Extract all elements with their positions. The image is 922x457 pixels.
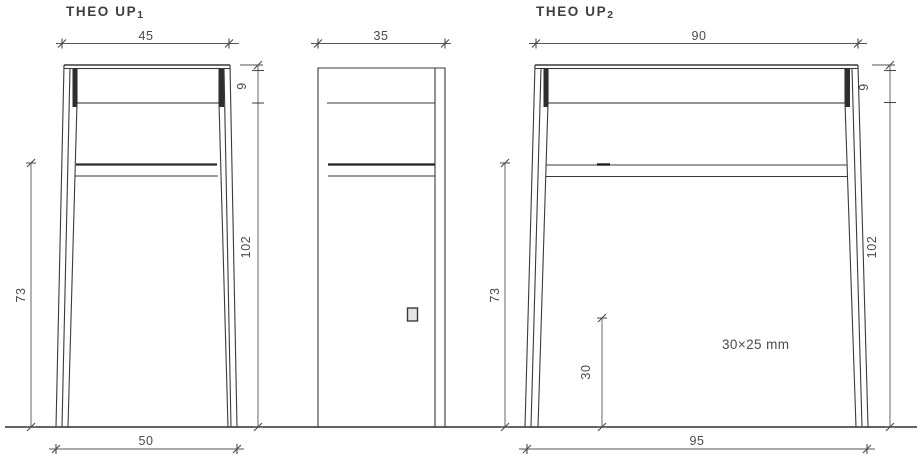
theo-up2-dim-top-width: 90 (529, 29, 867, 49)
theo-up1-dim-label-height-total: 102 (239, 236, 253, 259)
theo-up1-title-subscript: 1 (137, 9, 143, 21)
theo-up2-dim-label-top-thickness: 9 (857, 83, 871, 91)
theo-up2-apron (548, 69, 845, 104)
theo-up1-view: THEO UP1 (14, 4, 264, 454)
theo-up1-apron (77, 69, 219, 104)
theo-up2-dim-label-height-under-shelf: 73 (488, 287, 502, 302)
furniture-dimension-drawing: THEO UP1 (0, 0, 922, 457)
theo-up2-dim-shelf-support-height: 30 (579, 314, 607, 431)
side-view: 35 (311, 29, 451, 427)
theo-up1-dim-label-base-width: 50 (138, 434, 153, 448)
theo-up2-dim-label-height-total: 102 (865, 236, 879, 259)
theo-up1-left-leg-shading (73, 69, 78, 108)
theo-up1-title: THEO UP1 (66, 4, 143, 21)
side-view-outline (318, 68, 445, 427)
theo-up1-right-leg-shading (219, 69, 224, 108)
theo-up2-title-subscript: 2 (607, 9, 613, 21)
theo-up1-dim-left-vertical: 73 (14, 159, 36, 431)
theo-up2-dim-label-base-width: 95 (689, 434, 704, 448)
theo-up1-dim-label-top-thickness: 9 (235, 82, 249, 90)
theo-up2-view: THEO UP2 (488, 4, 896, 454)
theo-up2-title: THEO UP2 (536, 4, 613, 21)
theo-up1-dim-label-height-under-shelf: 73 (14, 287, 28, 302)
theo-up1-legs (56, 65, 237, 427)
theo-up1-dim-label-top-width: 45 (138, 29, 153, 43)
theo-up1-dim-right-vertical: 9 102 (235, 61, 264, 431)
technical-drawing-sheet: THEO UP1 (0, 0, 922, 457)
side-view-dim-depth: 35 (311, 29, 451, 49)
theo-up2-dim-label-shelf-support-height: 30 (579, 364, 593, 379)
side-view-dim-label-depth: 35 (373, 29, 388, 43)
theo-up1-dim-top-width: 45 (56, 29, 239, 49)
theo-up2-left-leg-shading (544, 69, 549, 108)
theo-up2-dim-base-width: 95 (519, 434, 875, 454)
theo-up1-title-text: THEO UP (66, 4, 137, 19)
theo-up2-legs (525, 65, 868, 427)
theo-up1-dim-base-width: 50 (49, 434, 244, 454)
theo-up2-stretcher (546, 165, 848, 177)
theo-up2-title-text: THEO UP (536, 4, 607, 19)
theo-up1-stretcher (76, 165, 219, 177)
theo-up2-profile-note: 30×25 mm (722, 337, 789, 352)
theo-up2-right-leg-shading (845, 69, 850, 108)
theo-up2-dim-label-top-width: 90 (691, 29, 706, 43)
theo-up2-dim-left-vertical: 73 (488, 159, 510, 431)
side-view-socket-detail (408, 308, 418, 321)
